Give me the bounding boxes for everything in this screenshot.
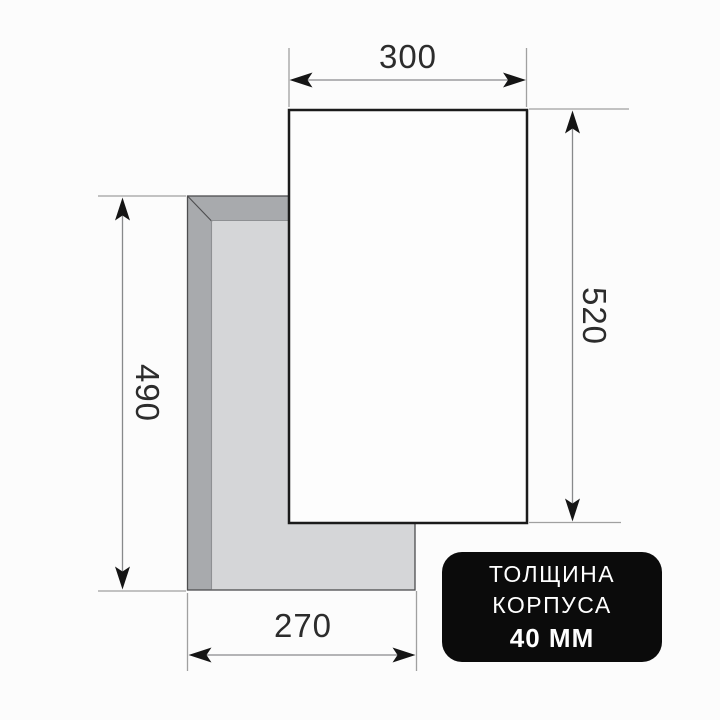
thickness-badge: ТОЛЩИНА КОРПУСА 40 ММ (442, 552, 662, 662)
dimension-label-left-height: 490 (128, 364, 166, 422)
dimension-label-top-width: 300 (379, 38, 437, 76)
dimension-diagram: 300 520 490 270 ТОЛЩИНА КОРПУСА 40 ММ (0, 0, 720, 720)
badge-line-1: ТОЛЩИНА (489, 559, 615, 590)
panel-shape (289, 110, 527, 523)
dimension-label-bottom-width: 270 (274, 607, 332, 645)
badge-line-2: КОРПУСА (492, 590, 611, 621)
dimension-label-right-height: 520 (575, 287, 613, 345)
badge-thickness-value: 40 ММ (510, 621, 594, 655)
